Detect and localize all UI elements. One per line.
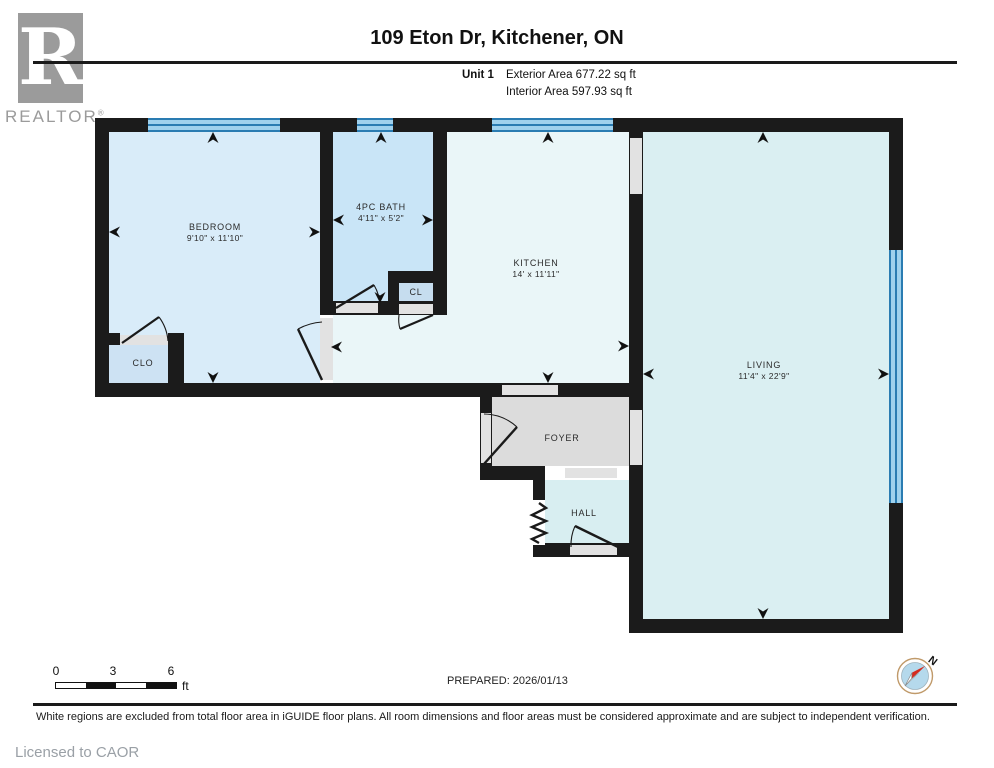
compass-north-label: N [926,654,940,668]
page-title: 109 Eton Dr, Kitchener, ON [0,27,994,50]
wall-clo-stub [103,333,120,345]
bath-dimensions: 4'11" x 5'2" [356,213,406,224]
opening-cl-door [399,304,433,314]
label-foyer: FOYER [544,433,579,444]
floor-plan-page: R REALTOR® 109 Eton Dr, Kitchener, ON Un… [0,0,994,768]
compass-icon: N [898,654,940,693]
room-foyer [492,397,629,466]
bedroom-window [148,118,280,132]
scale-bar [55,682,177,689]
bath-window [357,118,393,132]
opening-clo-door [120,335,168,345]
living-window [889,250,903,503]
label-living: LIVING 11'4" x 22'9" [738,360,789,382]
wall-cl-top [388,271,447,283]
wall-foyer-bottom [480,466,545,480]
label-hall: HALL [571,508,597,519]
label-kitchen: KITCHEN 14' x 11'11" [512,258,559,280]
disclaimer-text: White regions are excluded from total fl… [36,711,966,723]
bedroom-dimensions: 9'10" x 11'10" [187,233,243,244]
prepared-date: PREPARED: 2026/01/13 [447,675,568,687]
kitchen-dimensions: 14' x 11'11" [512,269,559,280]
compass-needle-north [912,666,925,679]
realtor-logo-letter: R [18,19,83,97]
label-clo: CLO [133,358,154,369]
scale-unit: ft [182,679,189,693]
scale-tick-6: 6 [168,664,175,678]
realtor-logo: R [18,13,83,103]
unit-label: Unit 1 [462,69,494,81]
opening-bath-door [336,303,378,313]
opening-foyer-hall [565,468,617,478]
scale-tick-0: 0 [53,664,60,678]
opening-foyer-living [630,410,642,465]
licensed-text: Licensed to CAOR [15,744,139,761]
label-bath: 4PC BATH 4'11" x 5'2" [356,202,406,224]
opening-stair-break [533,500,545,545]
opening-kitchen-foyer [502,385,558,395]
realtor-logo-word: REALTOR® [5,107,106,127]
wall-bottom-west [95,383,643,397]
interior-area: Interior Area 597.93 sq ft [506,86,632,98]
title-divider [33,61,957,64]
wall-living-bottom [629,619,903,633]
wall-bath-right [433,132,447,315]
opening-foyer-entry [481,413,491,463]
opening-hall-entry [570,545,617,555]
opening-bedroom-door [320,318,333,380]
wall-cl-left [388,283,399,315]
label-cl: CL [409,287,422,298]
room-kitchen-lower [333,315,447,383]
exterior-area: Exterior Area 677.22 sq ft [506,69,636,81]
wall-bedroom-bath [320,132,333,315]
wall-center-vertical [629,132,643,633]
footer-divider [33,703,957,706]
wall-left [95,118,109,397]
label-bedroom: BEDROOM 9'10" x 11'10" [187,222,243,244]
scale-tick-3: 3 [110,664,117,678]
kitchen-window [492,118,613,132]
opening-kitchen-living [630,138,642,194]
living-dimensions: 11'4" x 22'9" [738,371,789,382]
registered-mark: ® [98,108,106,117]
wall-clo-right [168,333,184,383]
